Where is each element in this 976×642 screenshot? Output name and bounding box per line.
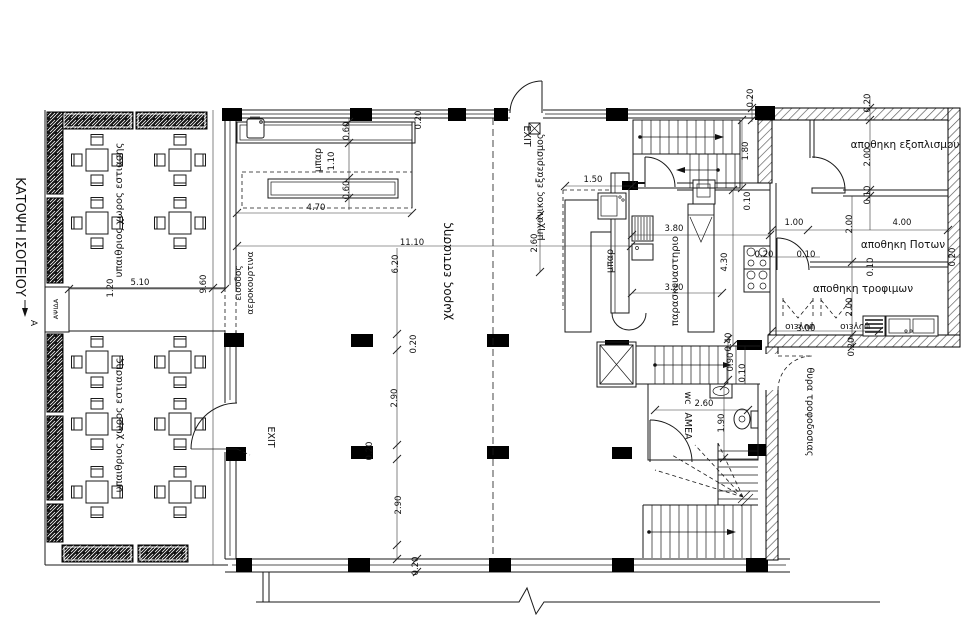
wc-label: wc bbox=[682, 392, 693, 405]
dimension-label: 1.10 bbox=[327, 152, 337, 171]
room-storage-food: αποθηκη τροφιμων bbox=[813, 283, 913, 295]
dimension-label: 0.20 bbox=[365, 442, 375, 461]
dimension-label: 2.00 bbox=[863, 148, 873, 167]
dimension-label: 0.20 bbox=[409, 335, 419, 354]
dimension-label: 2.60 bbox=[695, 399, 714, 409]
outdoor-dining-area bbox=[22, 110, 228, 565]
room-dining-hall: χωρος εστιασης bbox=[440, 222, 454, 320]
wc-sink-icon bbox=[710, 384, 732, 398]
elevator-icon bbox=[600, 345, 633, 384]
dimension-label: 0.20 bbox=[755, 250, 774, 260]
dimension-label: 0.10 bbox=[863, 186, 873, 205]
exit-label-top: EXIT bbox=[521, 125, 532, 146]
dimension-label: 0.60 bbox=[342, 181, 352, 200]
dimension-label: 0.40 bbox=[724, 333, 734, 352]
dimension-label: 0.20 bbox=[948, 248, 958, 267]
dimension-label: 0.90 bbox=[726, 353, 736, 372]
dimension-label: 4.30 bbox=[720, 253, 730, 272]
dimension-label: 3.20 bbox=[665, 283, 684, 293]
dimension-label: 0.20 bbox=[414, 111, 424, 130]
equipment-room-door bbox=[810, 120, 845, 193]
counter-end-curve bbox=[612, 313, 646, 330]
columns bbox=[222, 106, 775, 572]
dimension-label: 11.10 bbox=[400, 238, 424, 248]
dimension-label: 1.00 bbox=[785, 218, 804, 228]
dimension-label: 0.20 bbox=[746, 89, 756, 108]
dimension-label: 0.60 bbox=[342, 122, 352, 141]
dimension-label: 0.20 bbox=[863, 94, 873, 113]
prep-table bbox=[688, 180, 715, 332]
fridge-icon bbox=[783, 298, 851, 318]
room-outdoor-dining-upper: υπαιθριος χωρος εστιασης bbox=[114, 143, 125, 278]
mech-ventilation-label: μηχανικος εξαερισμος bbox=[535, 134, 546, 241]
north-wall bbox=[225, 110, 760, 118]
dimension-label: 1.20 bbox=[106, 279, 116, 298]
entrance-label: εισοδος bbox=[234, 265, 244, 300]
kitchen-door bbox=[645, 157, 675, 187]
bar-sink bbox=[598, 193, 626, 219]
room-storage-drinks: αποθηκη Ποτων bbox=[861, 239, 945, 251]
dimension-label: 1.50 bbox=[584, 175, 603, 185]
dimension-label: 0.10 bbox=[738, 364, 748, 383]
entrance-walkway bbox=[45, 287, 225, 332]
bar-counter bbox=[237, 117, 415, 208]
cash-register-icon bbox=[247, 117, 264, 138]
break-line bbox=[256, 588, 880, 614]
dimension-label: 2.90 bbox=[394, 496, 404, 515]
room-outdoor-dining-lower: υπαιθριος χωρος εστιασης bbox=[114, 358, 125, 493]
supply-door-label: θυρα τροφοδοσιας bbox=[804, 368, 815, 457]
floor-plan-drawing: ΚΑΤΟΨΗ ΙΣΟΓΕΙΟΥAυπαιθριος χωρος εστιασης… bbox=[0, 0, 976, 642]
dimension-label: 0.20 bbox=[411, 557, 421, 576]
dimension-label: 1.90 bbox=[717, 414, 727, 433]
site-boundary bbox=[256, 572, 880, 614]
dishwasher-icon bbox=[693, 180, 715, 204]
section-marker-a: A bbox=[28, 320, 38, 327]
dimension-label: 2.00 bbox=[845, 215, 855, 234]
storage-sink-unit bbox=[863, 316, 938, 336]
dimension-label: 0.10 bbox=[866, 258, 876, 277]
room-kitchen: παρασκευαστηριο bbox=[670, 236, 681, 326]
dimension-label: 0.20 bbox=[847, 338, 857, 357]
dimension-label: 2.60 bbox=[530, 234, 540, 253]
air-curtain-label: αεροκουρτινα bbox=[246, 251, 256, 314]
floor-plan-page: ΚΑΤΟΨΗ ΙΣΟΓΕΙΟΥAυπαιθριος χωρος εστιασης… bbox=[0, 0, 976, 642]
dimension-label: 1.80 bbox=[741, 142, 751, 161]
wc-amea-label: ΑΜΕΑ bbox=[682, 412, 693, 440]
section-arrow bbox=[22, 300, 28, 317]
outdoor-tables bbox=[72, 135, 206, 518]
plan-title: ΚΑΤΟΨΗ ΙΣΟΓΕΙΟΥ bbox=[12, 177, 27, 297]
room-labels: ΚΑΤΟΨΗ ΙΣΟΓΕΙΟΥAυπαιθριος χωρος εστιασης… bbox=[12, 125, 959, 492]
dimension-label: 9.60 bbox=[199, 275, 209, 294]
dimension-label: 0.10 bbox=[797, 250, 816, 260]
arch-label: ΑΨΙΔΑ bbox=[52, 298, 60, 319]
staircase-top bbox=[633, 120, 740, 188]
dimension-label: 6.20 bbox=[391, 255, 401, 274]
dimension-label: 2.90 bbox=[390, 389, 400, 408]
dimension-label: 3.80 bbox=[665, 224, 684, 234]
wc-room bbox=[648, 384, 758, 462]
dimension-label: 2.00 bbox=[845, 298, 855, 317]
exit-label-left: EXIT bbox=[265, 426, 276, 447]
dimension-labels: 0.200.601.100.604.7011.106.200.202.900.2… bbox=[106, 89, 958, 576]
dimension-label: 0.10 bbox=[743, 192, 753, 211]
fridge-label-2: ψυγειο bbox=[840, 321, 870, 331]
bar-label-top: μπαρ bbox=[313, 148, 324, 172]
small-appliance bbox=[632, 244, 653, 260]
dimension-label: 5.10 bbox=[131, 278, 150, 288]
dimension-label: 4.00 bbox=[893, 218, 912, 228]
dimension-label: 3.00 bbox=[797, 324, 816, 334]
dimension-label: 4.70 bbox=[307, 203, 326, 213]
bar-label-kitchen: μπαρ bbox=[605, 249, 616, 273]
